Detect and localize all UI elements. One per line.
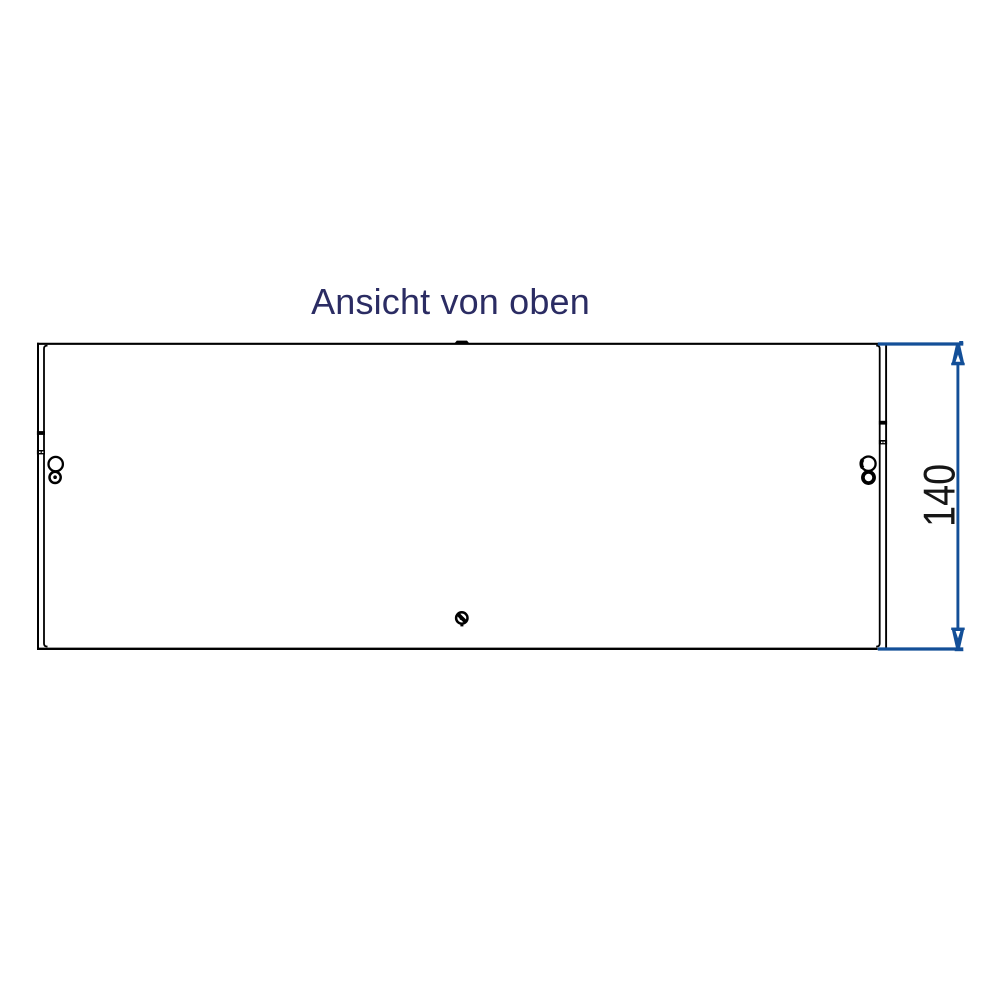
svg-text:140: 140	[916, 464, 965, 527]
svg-text:Ansicht von oben: Ansicht von oben	[311, 281, 590, 322]
